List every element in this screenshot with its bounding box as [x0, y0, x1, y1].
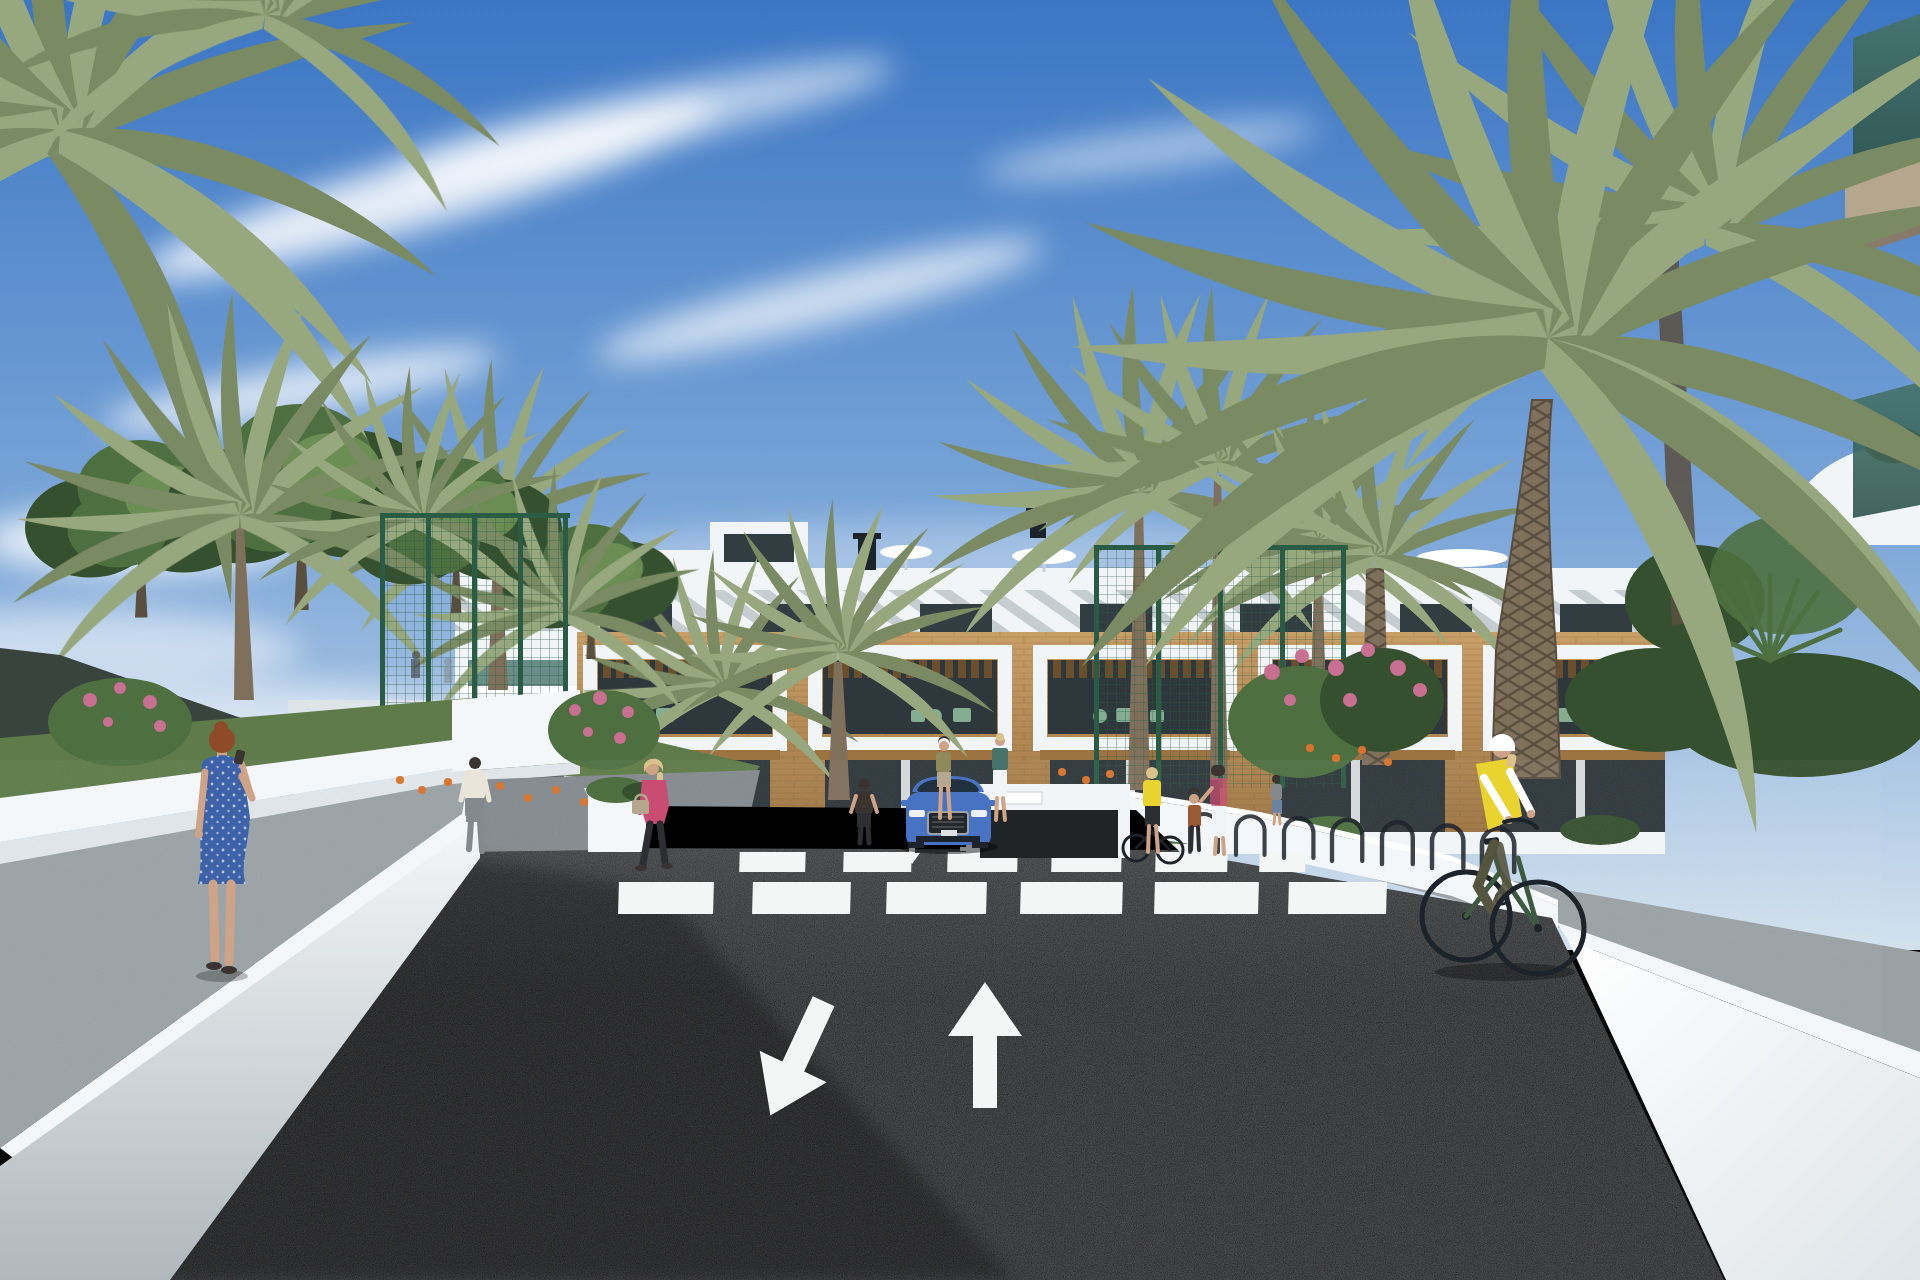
headlight: [909, 810, 925, 817]
handbag: [632, 800, 649, 814]
scene-canvas: [0, 0, 1920, 1280]
ramp-sign: [1002, 792, 1042, 804]
headlight: [971, 810, 987, 817]
rendered-scene: [0, 0, 1920, 1280]
